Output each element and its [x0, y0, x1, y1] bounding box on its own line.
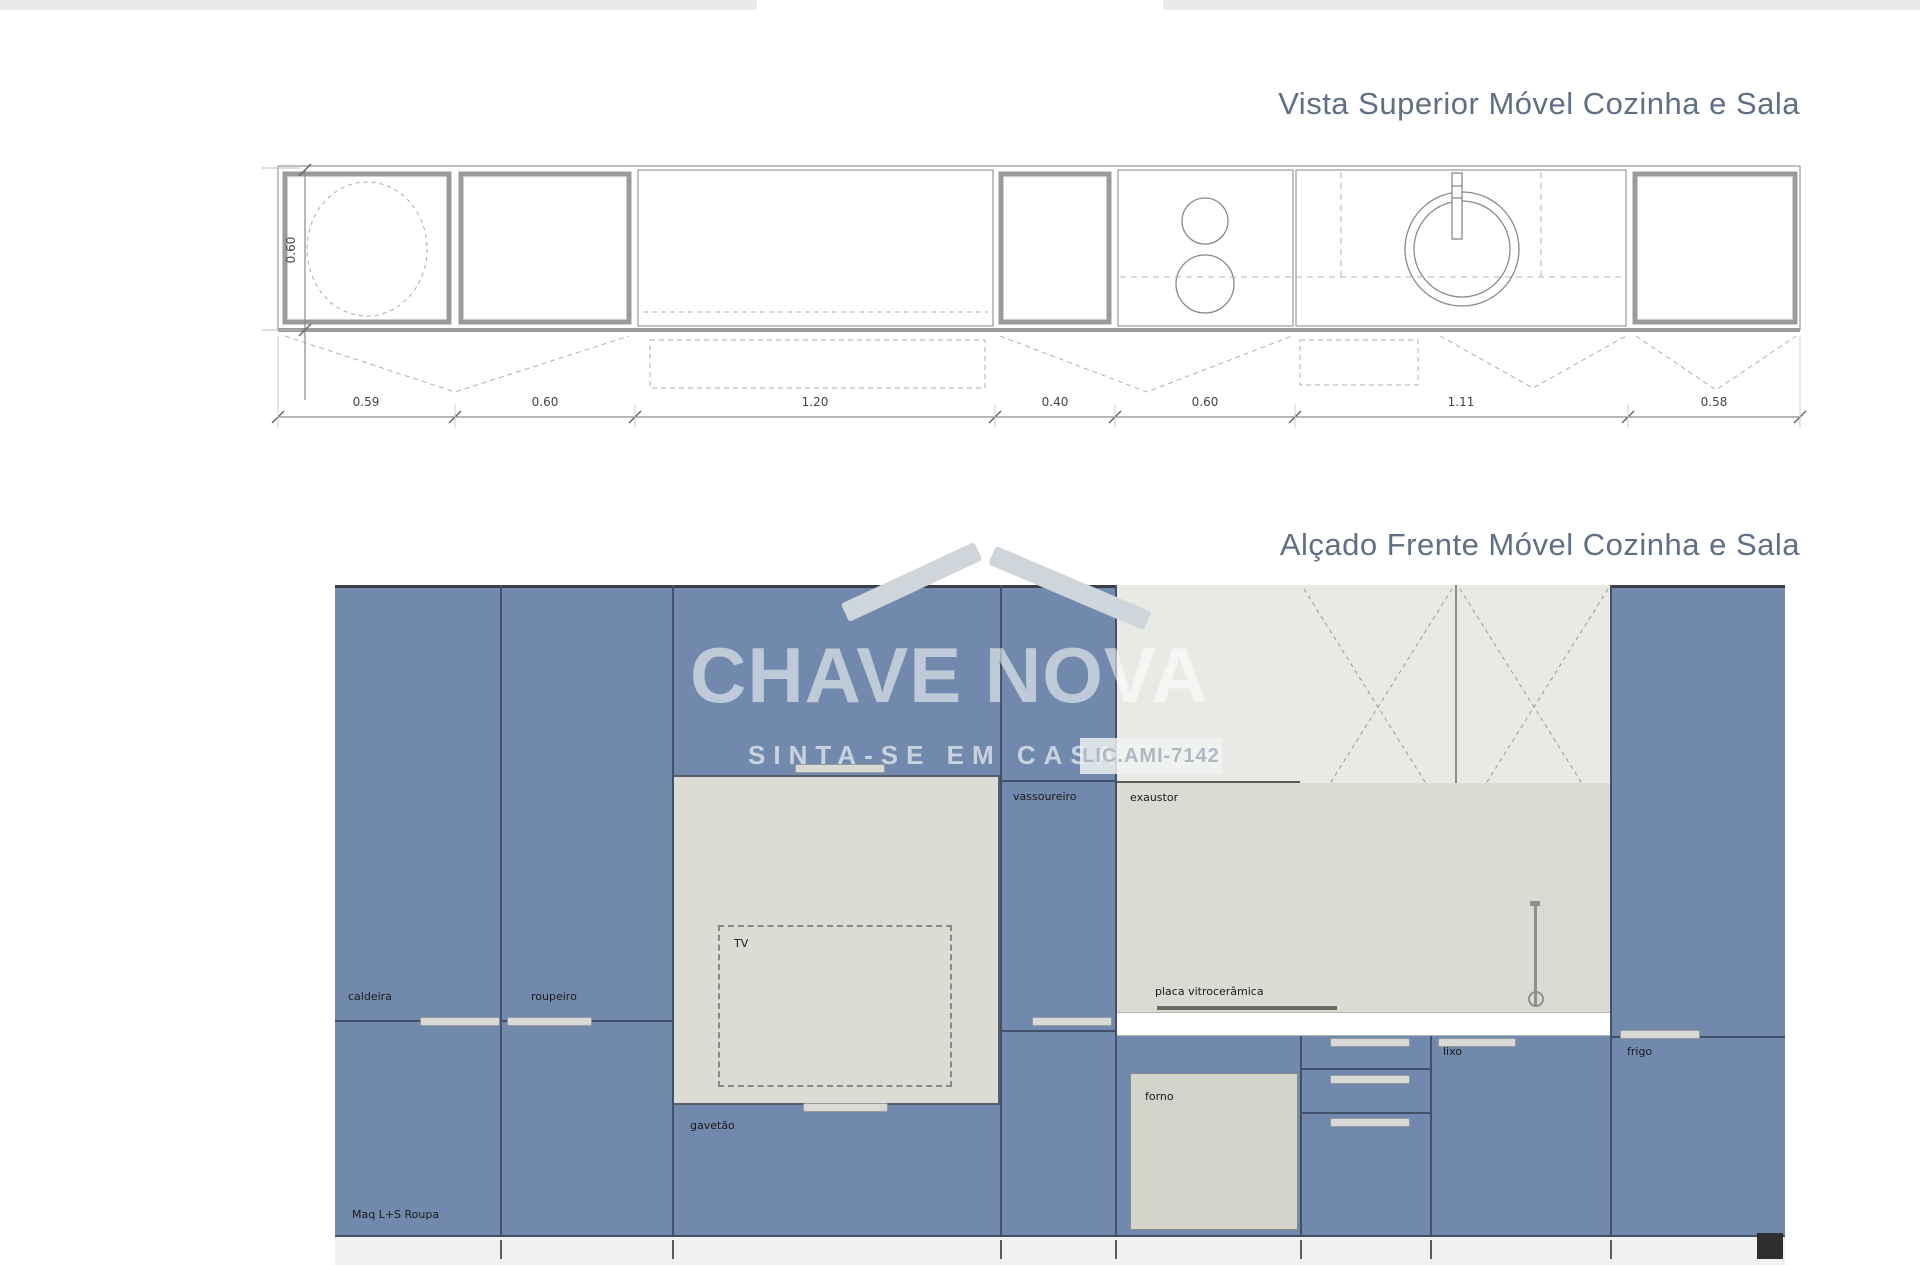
depth-dim-label: 0.60: [284, 237, 298, 264]
plinth-tick: [672, 1240, 674, 1259]
drawer-handle: [1330, 1118, 1410, 1127]
caldeira-label: caldeira: [348, 990, 392, 1003]
broom-closet-label: vassoureiro: [1013, 790, 1077, 803]
cooktop-icon: [1157, 1006, 1337, 1010]
faucet-icon: [1534, 905, 1537, 1005]
drawer-handle: [1330, 1038, 1410, 1047]
dim-label: 0.60: [532, 395, 559, 409]
plan-view-drawing: 0.59 0.60 1.20 0.40 0.60 1.11 0.58 0.60: [0, 0, 1920, 450]
washer-label: Maq L+S Roupa: [352, 1208, 439, 1221]
cooktop-label: placa vitrocerâmica: [1155, 985, 1264, 998]
door-handle: [1620, 1030, 1700, 1039]
divider: [1300, 1036, 1302, 1237]
plinth-tick: [500, 1240, 502, 1259]
divider: [1430, 1036, 1432, 1237]
plinth-tick: [1430, 1240, 1432, 1259]
tv-niche: TV: [672, 775, 1000, 1105]
faucet-base-icon: [1528, 991, 1544, 1007]
watermark-license-badge: LIC.AMI-7142: [1080, 738, 1222, 774]
drawer-label: gavetão: [690, 1119, 735, 1132]
plinth-strip: [335, 1237, 1785, 1265]
section-marker: [1757, 1233, 1783, 1259]
plinth-tick: [1610, 1240, 1612, 1259]
dim-label: 1.11: [1448, 395, 1475, 409]
door-handle: [507, 1017, 592, 1026]
divider: [672, 585, 674, 1237]
oven-label: forno: [1145, 1090, 1174, 1103]
elevation-title: Alçado Frente Móvel Cozinha e Sala: [1280, 527, 1800, 563]
plinth-tick: [1300, 1240, 1302, 1259]
door-swing-projections: [285, 336, 1796, 392]
plinth-tick: [1000, 1240, 1002, 1259]
dim-label: 0.59: [353, 395, 380, 409]
divider: [1000, 780, 1115, 782]
roupeiro-label: roupeiro: [531, 990, 577, 1003]
drawer-handle: [1330, 1075, 1410, 1084]
exaustor-zone: exaustor: [1115, 783, 1612, 1012]
fridge-label: frigo: [1627, 1045, 1652, 1058]
exaustor-label: exaustor: [1130, 791, 1178, 804]
tv-label: TV: [734, 937, 748, 950]
door-handle: [420, 1017, 500, 1026]
faucet-head-icon: [1530, 901, 1540, 906]
door-handle: [1032, 1017, 1112, 1026]
countertop: [1115, 1012, 1612, 1036]
dim-label: 1.20: [802, 395, 829, 409]
tv-outline: TV: [718, 925, 952, 1087]
divider: [1610, 585, 1612, 1237]
watermark-brand: CHAVE NOVA: [690, 630, 1209, 721]
drawer-divider: [1300, 1068, 1430, 1070]
divider: [500, 585, 502, 1237]
drawer-handle: [803, 1103, 888, 1112]
trash-label: lixo: [1443, 1045, 1462, 1058]
plan-dimension-line: 0.59 0.60 1.20 0.40 0.60 1.11 0.58: [272, 336, 1806, 428]
plan-thin-compartments: [638, 170, 1626, 326]
drawer-divider: [1300, 1112, 1430, 1114]
plinth-tick: [1115, 1240, 1117, 1259]
technical-drawing-page: Vista Superior Móvel Cozinha e Sala Alça…: [0, 0, 1920, 1265]
oven-panel: forno: [1130, 1073, 1298, 1230]
watermark-tagline: SINTA-SE EM CASA: [748, 740, 1123, 771]
divider: [335, 1020, 672, 1022]
dim-label: 0.58: [1701, 395, 1728, 409]
divider: [1000, 1030, 1115, 1032]
dim-label: 0.60: [1192, 395, 1219, 409]
dim-label: 0.40: [1042, 395, 1069, 409]
